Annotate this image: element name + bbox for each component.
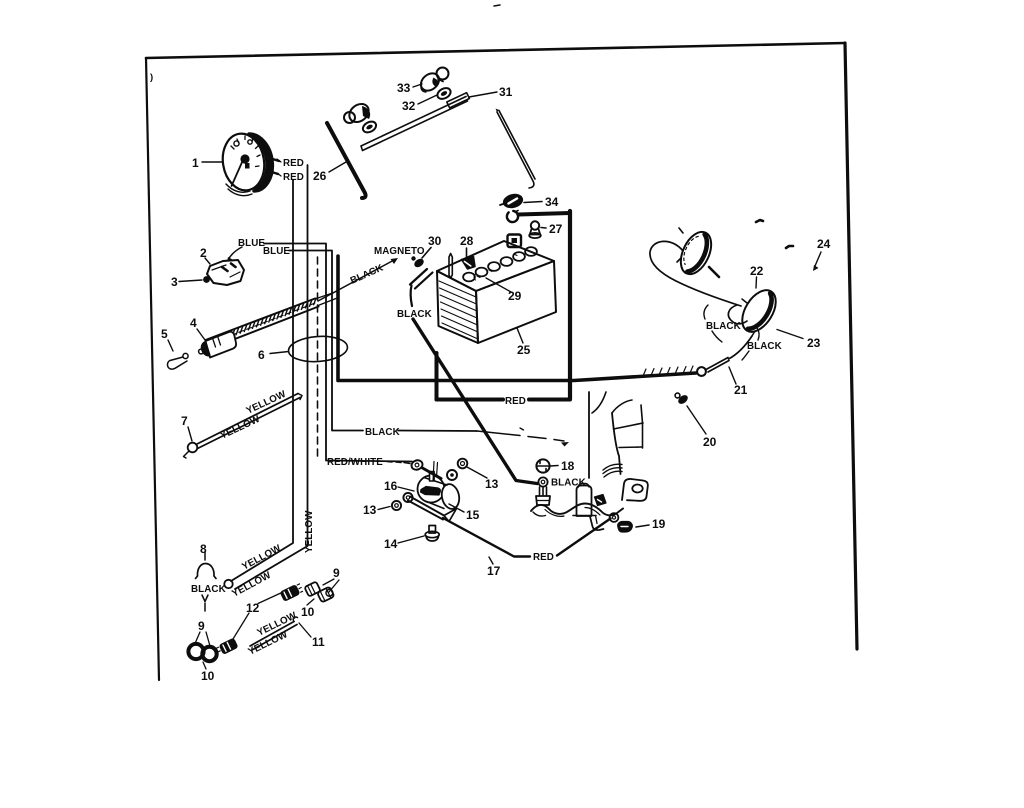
svg-text:6: 6 (258, 348, 265, 362)
svg-text:9: 9 (333, 566, 340, 580)
svg-text:YELLOW: YELLOW (230, 570, 273, 600)
svg-text:10: 10 (301, 605, 315, 619)
svg-text:BLACK: BLACK (747, 341, 782, 352)
svg-text:19: 19 (652, 517, 666, 531)
svg-text:18: 18 (561, 459, 575, 473)
svg-text:BLACK: BLACK (191, 584, 226, 595)
svg-text:11: 11 (312, 635, 325, 649)
svg-text:32: 32 (402, 99, 416, 113)
svg-text:RED: RED (505, 396, 526, 407)
svg-text:33: 33 (397, 81, 411, 95)
svg-text:9: 9 (198, 619, 205, 633)
svg-text:4: 4 (190, 316, 197, 330)
svg-text:20: 20 (703, 435, 717, 449)
svg-text:1: 1 (192, 156, 199, 170)
svg-text:8: 8 (200, 542, 207, 556)
svg-text:14: 14 (384, 537, 398, 551)
svg-text:RED: RED (533, 552, 554, 563)
svg-text:MAGNETO: MAGNETO (374, 246, 425, 257)
svg-text:17: 17 (487, 564, 501, 578)
svg-text:3: 3 (171, 275, 178, 289)
svg-text:31: 31 (499, 85, 513, 99)
svg-text:RED/WHITE: RED/WHITE (327, 457, 383, 468)
svg-text:BLACK: BLACK (365, 427, 400, 438)
svg-text:10: 10 (201, 669, 215, 683)
svg-text:22: 22 (750, 264, 764, 278)
svg-text:30: 30 (428, 234, 442, 248)
svg-text:28: 28 (460, 234, 474, 248)
svg-text:): ) (150, 72, 153, 83)
svg-text:BLACK: BLACK (349, 263, 385, 287)
svg-text:27: 27 (549, 222, 563, 236)
svg-text:2: 2 (200, 246, 207, 260)
svg-text:YELLOW: YELLOW (219, 414, 263, 442)
svg-text:13: 13 (485, 477, 499, 491)
svg-text:YELLOW: YELLOW (245, 389, 289, 417)
svg-text:7: 7 (181, 414, 188, 428)
svg-text:16: 16 (384, 479, 398, 493)
svg-text:YELLOW: YELLOW (240, 543, 283, 573)
svg-text:26: 26 (313, 169, 327, 183)
svg-text:BLACK: BLACK (706, 321, 741, 332)
svg-text:24: 24 (817, 237, 831, 251)
svg-text:BLUE: BLUE (263, 246, 290, 257)
svg-text:13: 13 (363, 503, 377, 517)
svg-text:5: 5 (161, 327, 168, 341)
svg-text:21: 21 (734, 383, 748, 397)
svg-text:YELLOW: YELLOW (304, 510, 315, 553)
svg-text:23: 23 (807, 336, 821, 350)
svg-text:34: 34 (545, 195, 559, 209)
svg-text:25: 25 (517, 343, 531, 357)
svg-text:15: 15 (466, 508, 480, 522)
svg-text:RED: RED (283, 158, 304, 169)
